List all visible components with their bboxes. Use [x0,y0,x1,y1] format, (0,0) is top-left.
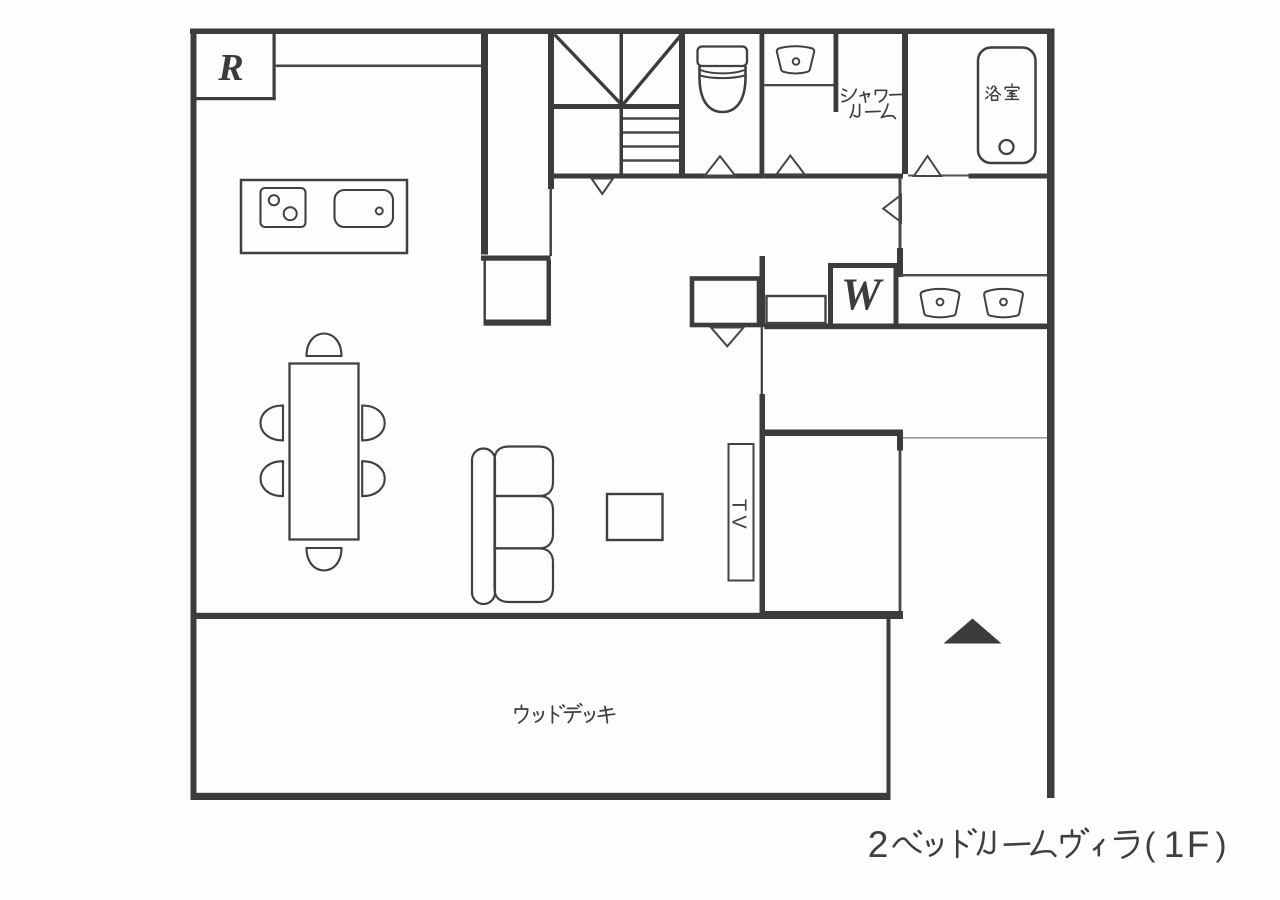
svg-text:): ) [1216,826,1227,863]
svg-text:R: R [217,47,243,89]
svg-text:W: W [841,270,884,320]
svg-text:F: F [1187,824,1210,865]
svg-text:V: V [728,515,750,529]
svg-text:(: ( [1145,826,1156,863]
svg-text:T: T [728,499,750,511]
svg-text:1: 1 [1164,824,1185,865]
svg-text:2: 2 [868,824,889,865]
